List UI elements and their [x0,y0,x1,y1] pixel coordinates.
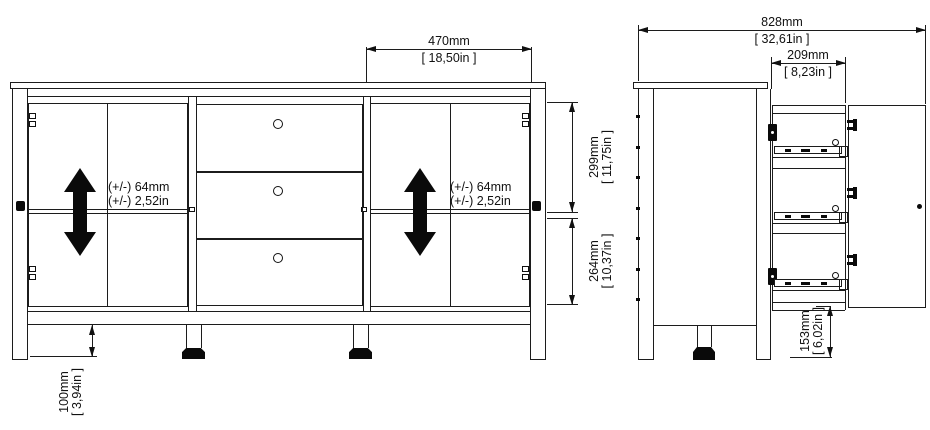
left-door-hinge-icon [29,113,36,119]
rear-stile-bottom-line [756,359,771,360]
dim-299-in: [ 11,75in ] [601,125,614,189]
edge-fitting-mark [636,298,640,301]
dim-264-in: [ 10,37in ] [601,229,614,293]
drawer-front [196,104,363,172]
right-side-panel-outer-line [545,89,546,360]
shelf-adjust-note-left: (+/-) 64mm (+/-) 2,52in [108,180,169,208]
right-door-knob-icon [532,201,541,211]
right-side-panel-bottom-line [530,359,546,360]
drawer-slide-rail-icon [774,146,842,154]
dim-209-mm: 209mm [735,48,881,62]
door-knob-icon [917,204,922,209]
leg-line [201,325,202,348]
dim-470-mm: 470mm [366,34,532,48]
dim-209-in: [ 8,23in ] [735,65,881,79]
left-door-hinge-icon [29,274,36,280]
side-bottom-line [653,325,756,326]
drawer-front-edge [839,279,848,290]
dimension-line-299 [572,102,573,212]
left-door-hinge-icon [29,266,36,272]
technical-drawing-canvas: (+/-) 64mm (+/-) 2,52in (+/-) 64mm (+/-)… [0,0,930,430]
drawer-box-line [772,157,845,158]
right-door-hinge-icon [522,266,529,272]
edge-fitting-mark [636,237,640,240]
leg-line [697,325,698,347]
front-stile-inner-line [653,89,654,360]
dim-299-label: 299mm [ 11,75in ] [587,125,615,189]
dimension-line-828 [638,30,926,31]
dimension-line-100 [92,325,93,357]
adjustable-shelf-arrow-icon [403,168,437,256]
front-stile-bottom-line [638,359,654,360]
shelf-adjust-in: (+/-) 2,52in [108,194,169,208]
drawer-front-edge [839,146,848,157]
drawer-front-edge [839,212,848,223]
dimension-line-264 [572,218,573,305]
rear-stile-line [756,89,757,360]
dim-828-in: [ 32,61in ] [638,32,926,46]
right-door-hinge-icon [522,121,529,127]
door-hinge-icon [847,119,861,131]
drawer-knob-icon [273,119,283,129]
leg-line [186,325,187,348]
drawer-front [196,172,363,239]
drawer-slide-rail-icon [774,279,842,287]
drawer-box-line [772,233,845,234]
right-adjustable-shelf [370,209,530,214]
drawer-knob-icon [273,253,283,263]
dim-264-label: 264mm [ 10,37in ] [587,229,615,293]
edge-fitting-mark [636,146,640,149]
dim-153-label: 153mm [ 6,02in ] [798,299,826,363]
door-hinge-icon [847,187,861,199]
bottom-rail-under-line [27,324,530,325]
dim-100-label: 100mm [ 3,94in ] [57,360,85,424]
leg-line [353,325,354,348]
left-side-panel-bottom-line [12,359,28,360]
rail-roller-icon [832,139,839,146]
edge-fitting-mark [636,176,640,179]
edge-fitting-mark [636,115,640,118]
left-side-panel-outer-line [12,89,13,360]
leg-line [711,325,712,347]
stile-line [188,96,189,311]
leg-foot-icon [182,348,205,359]
dim-828-mm: 828mm [638,15,926,29]
right-door-hinge-icon [522,113,529,119]
drawer-box-line [772,113,845,114]
dim-470-in: [ 18,50in ] [366,51,532,65]
drawer-slide-rail-icon [774,212,842,220]
top-panel [10,82,546,89]
dimension-line-209 [771,63,846,64]
edge-fitting-mark [636,207,640,210]
left-door-hinge-icon [29,121,36,127]
open-door-bottom-line [848,307,926,308]
drawer-lock-clip-icon [768,124,777,141]
extension-line [547,212,578,213]
floor-extension-line [30,356,97,357]
leg-foot-icon [349,348,372,359]
drawer-box-line [772,290,845,291]
right-side-panel-inner-line [530,89,531,360]
right-door-hinge-icon [522,274,529,280]
shelf-adjust-mm: (+/-) 64mm [108,180,169,194]
drawer-box-line [772,223,845,224]
top-rail-line [27,96,530,97]
left-adjustable-shelf [28,209,188,214]
dimension-line-470 [366,49,532,50]
stile-line [363,96,364,311]
shelf-pin [189,207,195,212]
rail-roller-icon [832,272,839,279]
dimension-line-153 [830,306,831,357]
shelf-adjust-mm: (+/-) 64mm [450,180,511,194]
open-door-inner-line [848,105,849,307]
open-door-top-line [848,105,926,106]
shelf-adjust-in: (+/-) 2,52in [450,194,511,208]
drawer-knob-icon [273,186,283,196]
edge-fitting-mark [636,268,640,271]
leg-line [368,325,369,348]
rail-roller-icon [832,205,839,212]
drawer-box-line [772,105,845,106]
leg-foot-icon [693,347,715,360]
front-stile-outer-line [638,89,639,360]
open-door-edge-line [925,105,926,308]
side-top-panel [633,82,768,89]
drawer-front [196,239,363,306]
dim-153-in: [ 6,02in ] [812,299,825,363]
bottom-rail-top-line [27,311,530,312]
door-hinge-icon [847,254,861,266]
shelf-adjust-note-right: (+/-) 64mm (+/-) 2,52in [450,180,511,208]
left-door-knob-icon [16,201,25,211]
dim-100-in: [ 3,94in ] [71,360,84,424]
adjustable-shelf-arrow-icon [63,168,97,256]
drawer-box-line [772,168,845,169]
